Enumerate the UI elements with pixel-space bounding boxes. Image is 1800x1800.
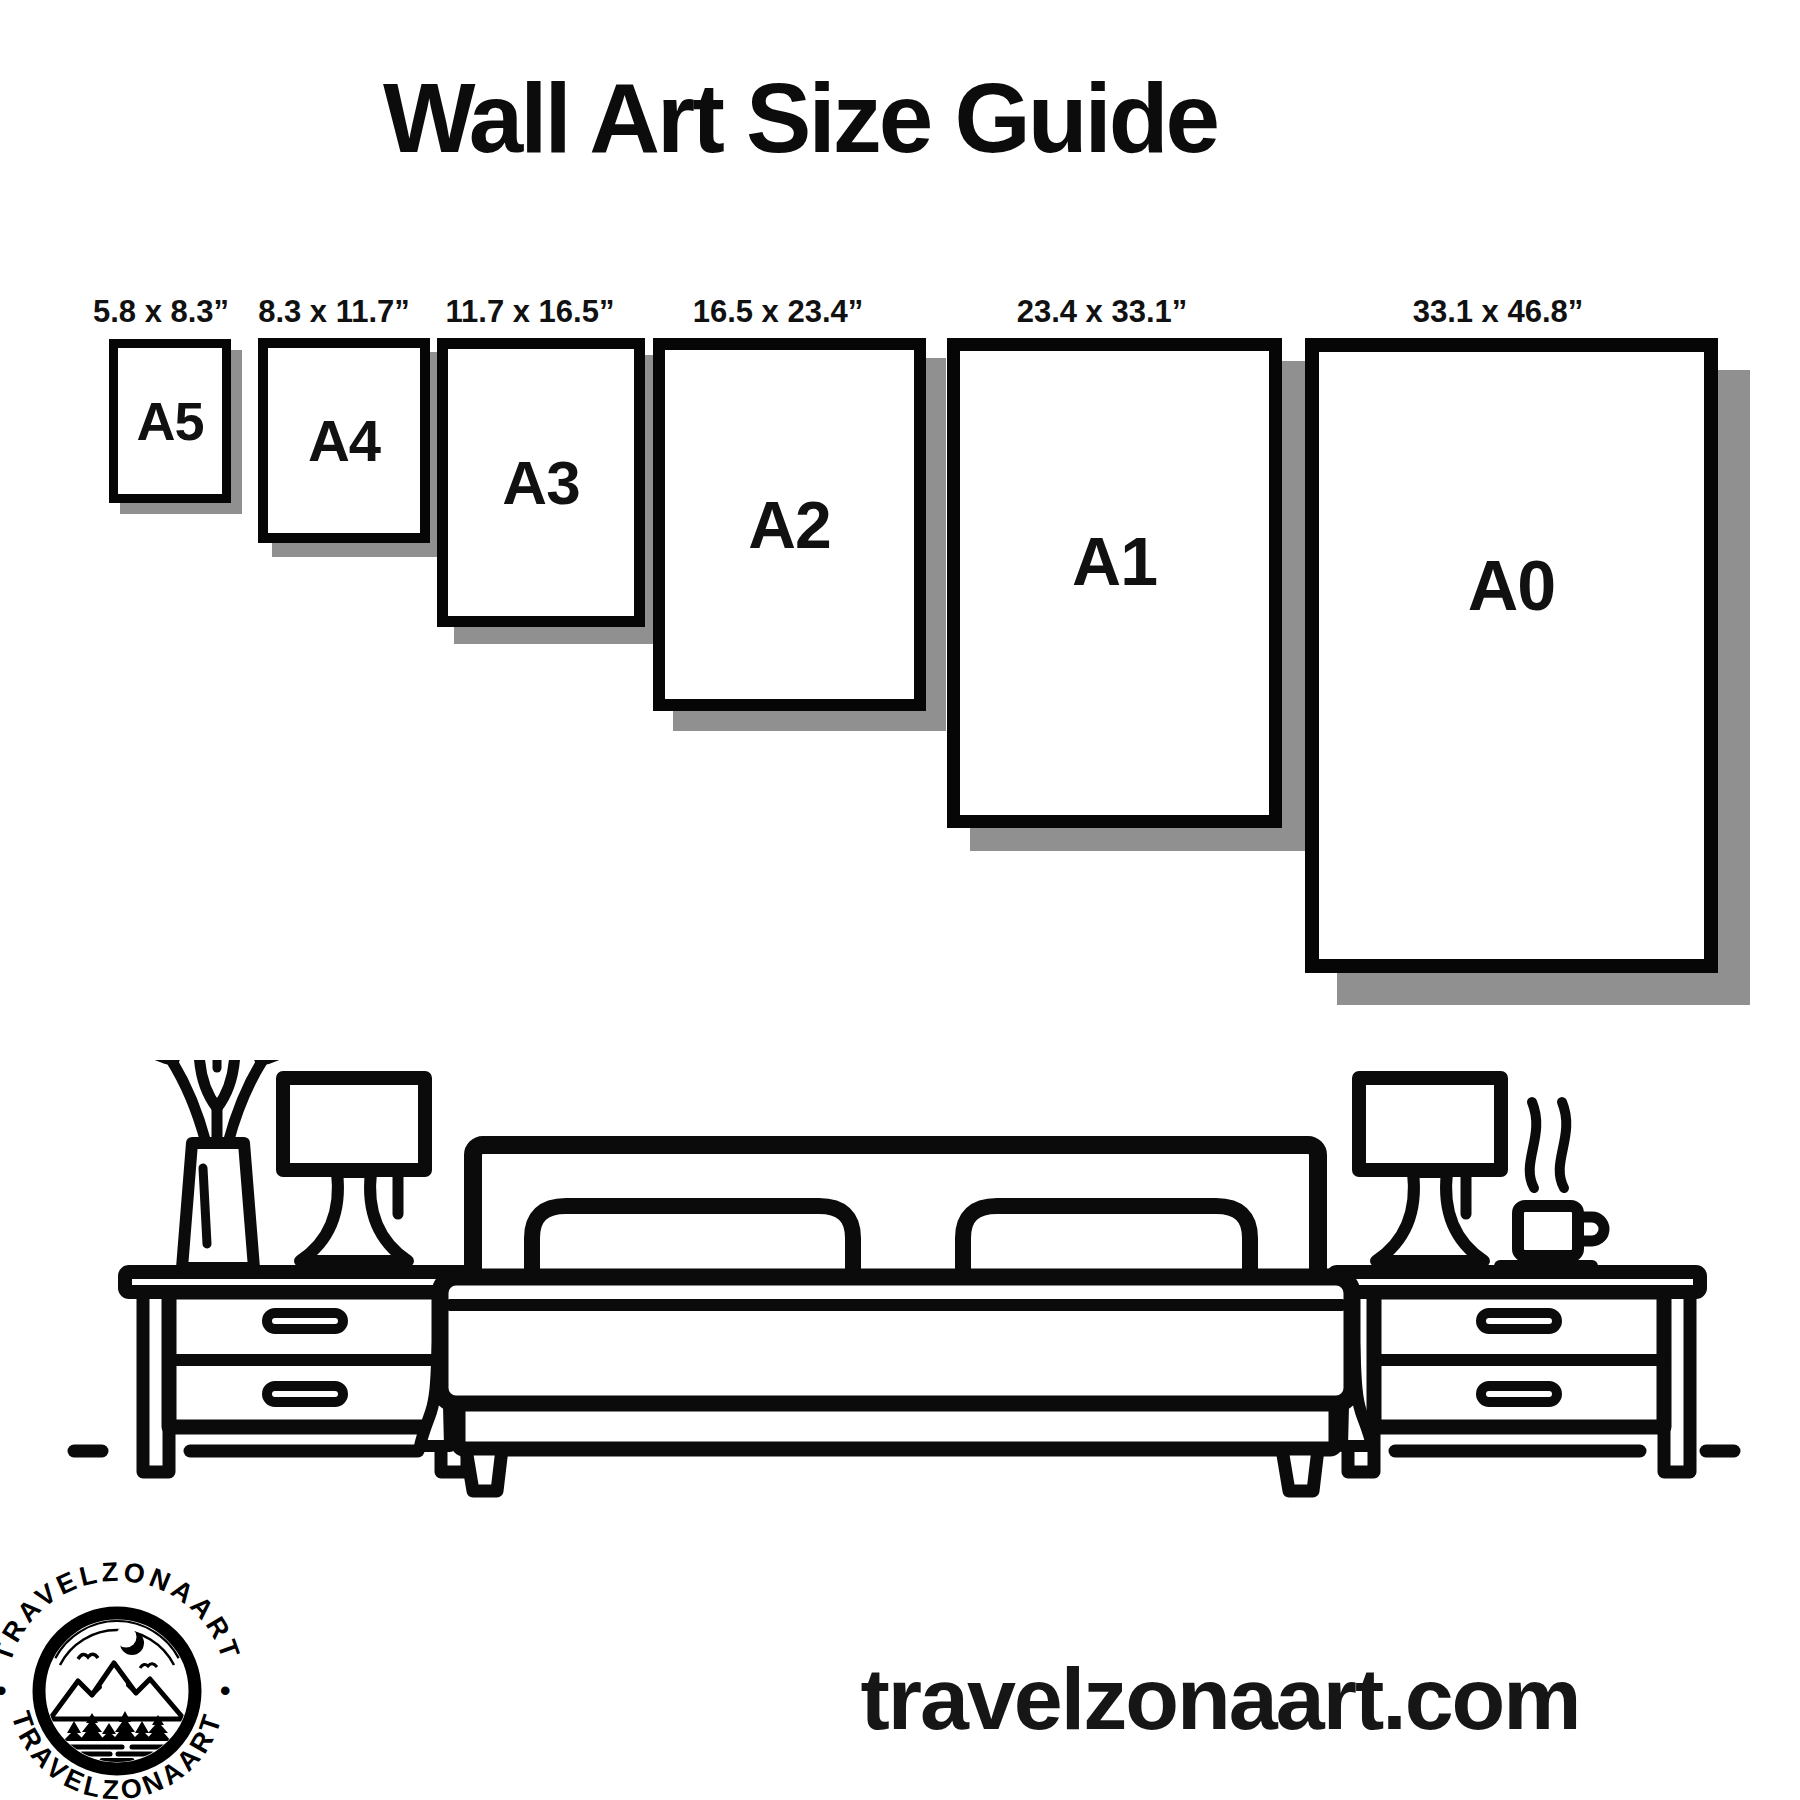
bed-base <box>458 1404 1336 1449</box>
frame-letter-a4: A4 <box>308 407 380 474</box>
frame-letter-a1: A1 <box>1072 522 1157 600</box>
svg-text:•: • <box>0 1674 7 1707</box>
bed-leg-right <box>1282 1449 1318 1491</box>
page-title: Wall Art Size Guide <box>100 62 1500 175</box>
svg-text:•: • <box>220 1674 231 1707</box>
lamp-left-icon <box>283 1078 425 1261</box>
size-frame-a0: A0 <box>1305 338 1718 973</box>
frame-letter-a2: A2 <box>748 487 830 563</box>
size-label-a1: 23.4 x 33.1” <box>982 294 1222 332</box>
coffee-cup-icon <box>1500 1102 1604 1266</box>
frame-letter-a0: A0 <box>1468 546 1555 626</box>
frame-letter-a5: A5 <box>136 390 203 452</box>
bed-icon <box>420 1145 1372 1491</box>
size-label-a3: 11.7 x 16.5” <box>410 294 650 332</box>
nightstand-right-icon <box>1333 1272 1700 1472</box>
size-label-a0: 33.1 x 46.8” <box>1378 294 1618 332</box>
size-frame-a4: A4 <box>258 338 430 543</box>
frame-letter-a3: A3 <box>502 447 579 518</box>
mattress <box>440 1277 1352 1404</box>
lamp-right-icon <box>1359 1078 1501 1261</box>
size-frame-a5: A5 <box>109 339 231 503</box>
bedroom-scene <box>0 1060 1800 1620</box>
website-url: travelzonaart.com <box>830 1648 1610 1750</box>
bed-leg-left <box>466 1449 502 1491</box>
size-frame-a1: A1 <box>947 338 1282 828</box>
size-frame-a2: A2 <box>653 338 926 711</box>
size-frame-a3: A3 <box>437 338 645 627</box>
brand-logo-badge: TRAVELZONAART TRAVELZONAART • • <box>0 1551 272 1800</box>
size-label-a2: 16.5 x 23.4” <box>658 294 898 332</box>
